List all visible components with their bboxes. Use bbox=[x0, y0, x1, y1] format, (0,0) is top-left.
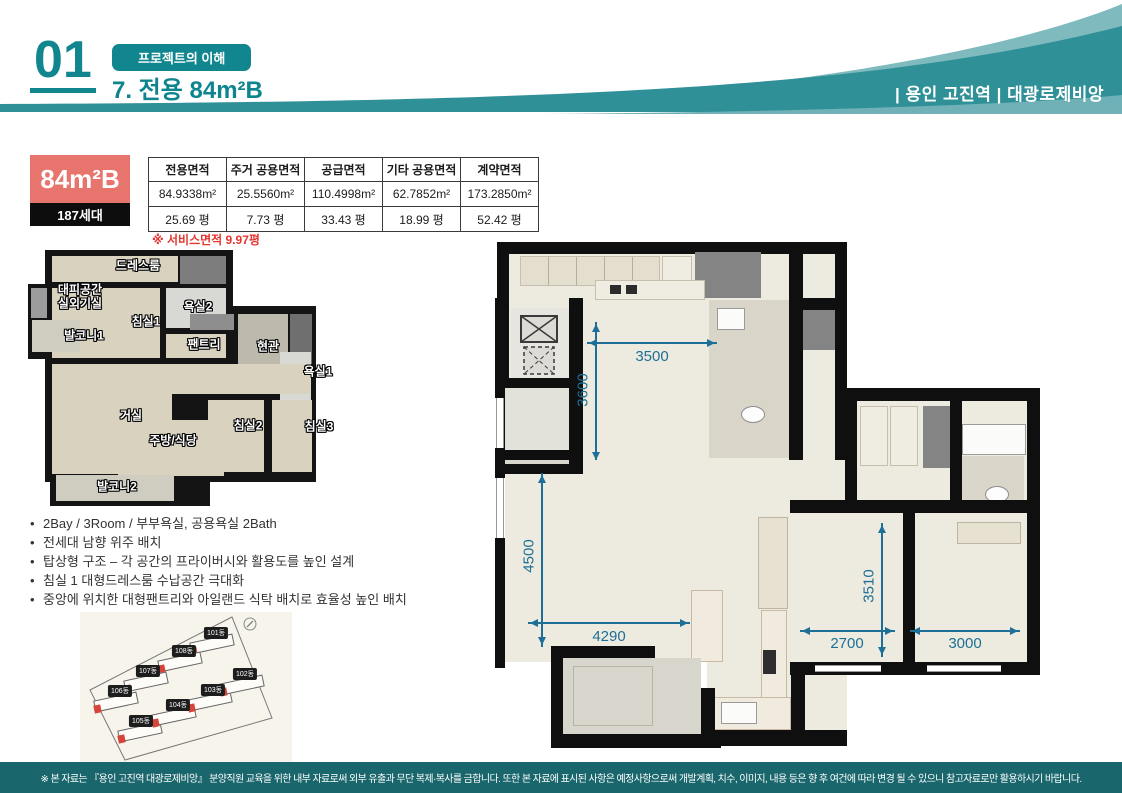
balcony2-inner-line bbox=[573, 666, 653, 726]
large-floor-plan: 3500 3600 4500 4290 bbox=[495, 238, 1055, 762]
toilet bbox=[741, 406, 765, 423]
room-label-bath2: 욕실2 bbox=[184, 298, 213, 315]
section-number: 01 bbox=[30, 34, 96, 93]
entrance-closet bbox=[860, 406, 888, 466]
page-title: 7. 전용 84m²B bbox=[112, 70, 263, 105]
room-label-bedroom2: 침실2 bbox=[234, 417, 263, 434]
room-label-balcony1: 발코니1 bbox=[64, 327, 104, 344]
sqm-value: 25.5560m² bbox=[227, 182, 305, 207]
dim-line-3000 bbox=[910, 630, 1020, 632]
col-header: 기타 공용면적 bbox=[383, 158, 461, 182]
building-label-103: 103동 bbox=[201, 684, 225, 696]
col-header: 계약면적 bbox=[461, 158, 539, 182]
dim-3500: 3500 bbox=[635, 348, 668, 365]
area-table-header-row: 전용면적 주거 공용면적 공급면적 기타 공용면적 계약면적 bbox=[149, 158, 539, 182]
sqm-value: 110.4998m² bbox=[305, 182, 383, 207]
room-label-dressroom: 드레스룸 bbox=[116, 257, 160, 274]
room-label-bedroom1: 침실1 bbox=[132, 313, 161, 330]
window bbox=[927, 665, 1001, 672]
entry-storage bbox=[923, 406, 953, 468]
building-label-105: 105동 bbox=[129, 715, 153, 727]
bathtub bbox=[962, 424, 1026, 455]
building-marker bbox=[117, 734, 126, 743]
storage-room bbox=[803, 310, 835, 350]
area-table: 전용면적 주거 공용면적 공급면적 기타 공용면적 계약면적 84.9338m²… bbox=[148, 157, 539, 232]
building-label-108: 108동 bbox=[172, 645, 196, 657]
dim-2700: 2700 bbox=[830, 635, 863, 652]
unit-households-box: 187세대 bbox=[30, 203, 130, 226]
col-header: 공급면적 bbox=[305, 158, 383, 182]
sqm-value: 62.7852m² bbox=[383, 182, 461, 207]
pyeong-value: 25.69 평 bbox=[149, 207, 227, 232]
building-label-107: 107동 bbox=[136, 665, 160, 677]
stove bbox=[763, 650, 776, 674]
window bbox=[496, 398, 504, 448]
site-map: 101동 108동 107동 106동 105동 104동 103동 102동 bbox=[80, 612, 292, 762]
room-label-bath1: 욕실1 bbox=[304, 363, 333, 380]
pantry-cabinet bbox=[758, 517, 788, 609]
feature-item: 전세대 남향 위주 배치 bbox=[30, 533, 407, 552]
feature-item: 2Bay / 3Room / 부부욕실, 공용욕실 2Bath bbox=[30, 514, 407, 533]
room-label-outdoor-unit: 실외기실 bbox=[58, 295, 102, 312]
room-label-entrance: 현관 bbox=[257, 338, 279, 355]
dim-line-2700 bbox=[800, 630, 895, 632]
dim-line-3600 bbox=[595, 322, 597, 462]
feature-item: 침실 1 대형드레스룸 수납공간 극대화 bbox=[30, 571, 407, 590]
sink bbox=[721, 702, 757, 724]
area-table-pyeong-row: 25.69 평 7.73 평 33.43 평 18.99 평 52.42 평 bbox=[149, 207, 539, 232]
bedroom3-closet bbox=[957, 522, 1021, 544]
room-label-pantry: 팬트리 bbox=[187, 336, 220, 353]
area-table-sqm-row: 84.9338m² 25.5560m² 110.4998m² 62.7852m²… bbox=[149, 182, 539, 207]
pyeong-value: 7.73 평 bbox=[227, 207, 305, 232]
feature-list: 2Bay / 3Room / 부부욕실, 공용욕실 2Bath 전세대 남향 위… bbox=[30, 514, 407, 609]
entrance-closet bbox=[890, 406, 918, 466]
pyeong-value: 33.43 평 bbox=[305, 207, 383, 232]
pyeong-value: 52.42 평 bbox=[461, 207, 539, 232]
stair-hall bbox=[505, 388, 569, 450]
building-label-106: 106동 bbox=[108, 685, 132, 697]
sqm-value: 173.2850m² bbox=[461, 182, 539, 207]
project-name: | 용인 고진역 | 대광로제비앙 bbox=[895, 80, 1104, 105]
dim-3000: 3000 bbox=[948, 635, 981, 652]
window bbox=[496, 478, 504, 538]
room-label-living: 거실 bbox=[120, 407, 142, 424]
unit-type-box: 84m²B bbox=[30, 155, 130, 203]
footer-disclaimer-text: ※ 본 자료는 『용인 고진역 대광로제비앙』 분양직원 교육을 위한 내부 자… bbox=[41, 770, 1082, 785]
cooktop bbox=[610, 285, 621, 294]
window bbox=[815, 665, 881, 672]
dim-line-4290 bbox=[528, 622, 690, 624]
room-label-balcony2: 발코니2 bbox=[97, 478, 137, 495]
feature-item: 중앙에 위치한 대형팬트리와 아일랜드 식탁 배치로 효율성 높인 배치 bbox=[30, 590, 407, 609]
col-header: 전용면적 bbox=[149, 158, 227, 182]
sqm-value: 84.9338m² bbox=[149, 182, 227, 207]
page: 01 프로젝트의 이해 7. 전용 84m²B | 용인 고진역 | 대광로제비… bbox=[0, 0, 1122, 793]
room-label-bedroom3: 침실3 bbox=[305, 418, 334, 435]
cooktop bbox=[626, 285, 637, 294]
feature-item: 탑상형 구조 – 각 공간의 프라이버시와 활용도를 높인 설계 bbox=[30, 552, 407, 571]
pyeong-value: 18.99 평 bbox=[383, 207, 461, 232]
dim-3600: 3600 bbox=[575, 373, 592, 406]
dim-4290: 4290 bbox=[592, 628, 625, 645]
building-marker bbox=[93, 704, 102, 713]
dim-line-3500 bbox=[587, 342, 717, 344]
building-label-104: 104동 bbox=[166, 699, 190, 711]
elevator-shaft-icon bbox=[519, 314, 563, 376]
footer-disclaimer-bar: ※ 본 자료는 『용인 고진역 대광로제비앙』 분양직원 교육을 위한 내부 자… bbox=[0, 762, 1122, 793]
section-badge: 프로젝트의 이해 bbox=[112, 44, 251, 71]
dim-3510: 3510 bbox=[861, 569, 878, 602]
dim-line-3510 bbox=[881, 523, 883, 657]
col-header: 주거 공용면적 bbox=[227, 158, 305, 182]
kitchen-island bbox=[691, 590, 723, 662]
dim-4500: 4500 bbox=[521, 539, 538, 572]
building-label-101: 101동 bbox=[204, 627, 228, 639]
room-label-kitchen: 주방/식당 bbox=[149, 432, 197, 449]
compass-icon bbox=[244, 618, 256, 630]
sink bbox=[717, 308, 745, 330]
dim-line-4500 bbox=[541, 473, 543, 647]
building-label-102: 102동 bbox=[233, 668, 257, 680]
